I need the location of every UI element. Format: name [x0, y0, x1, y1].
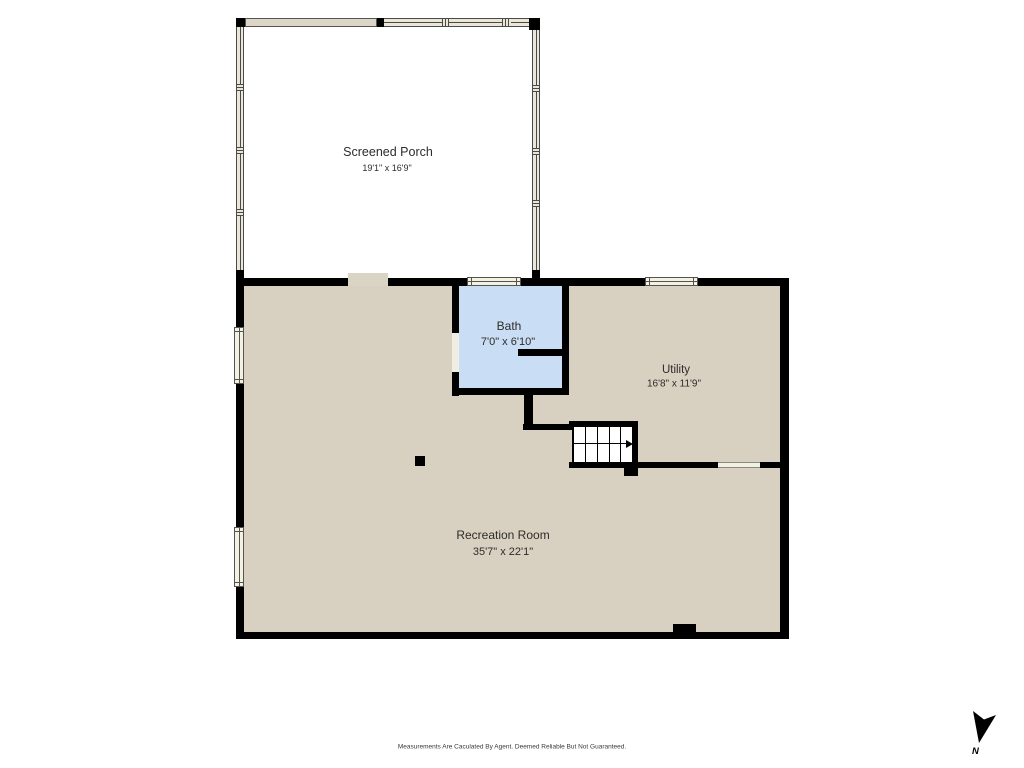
- svg-text:N: N: [972, 746, 980, 757]
